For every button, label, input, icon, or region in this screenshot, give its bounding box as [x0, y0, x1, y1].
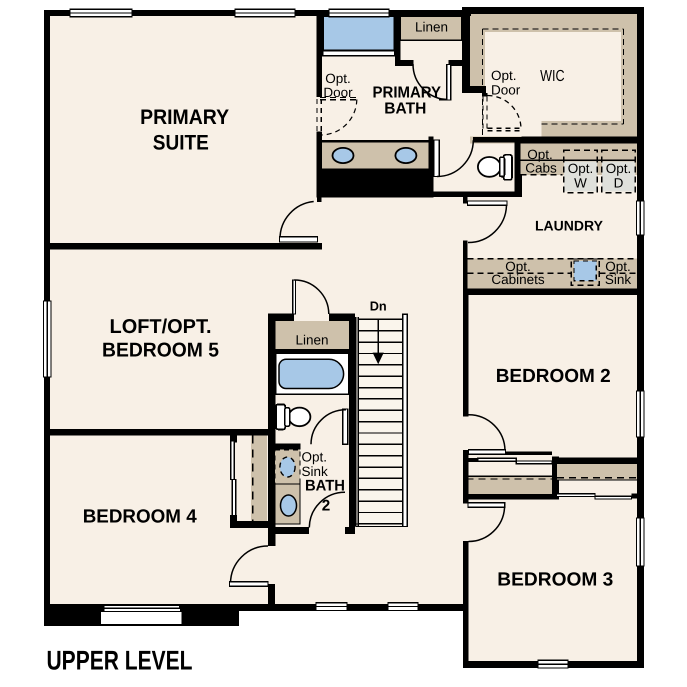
svg-text:Opt.: Opt. [302, 450, 328, 465]
svg-text:Opt.: Opt. [568, 161, 594, 176]
svg-text:W: W [574, 176, 587, 191]
svg-text:PRIMARY: PRIMARY [140, 106, 229, 129]
svg-text:WIC: WIC [540, 68, 565, 85]
svg-text:LOFT/OPT.: LOFT/OPT. [110, 316, 212, 338]
svg-text:Opt.: Opt. [491, 68, 517, 83]
svg-text:Linen: Linen [295, 333, 328, 348]
svg-text:BEDROOM 5: BEDROOM 5 [102, 340, 219, 362]
svg-text:Door: Door [323, 85, 353, 100]
svg-text:PRIMARY: PRIMARY [373, 85, 442, 102]
svg-text:BEDROOM 3: BEDROOM 3 [497, 570, 613, 591]
svg-text:UPPER LEVEL: UPPER LEVEL [47, 646, 193, 676]
svg-text:SUITE: SUITE [153, 132, 209, 155]
svg-text:Dn: Dn [370, 299, 387, 314]
svg-text:D: D [614, 176, 624, 191]
svg-text:Linen: Linen [415, 20, 448, 35]
svg-text:Cabs: Cabs [525, 160, 557, 175]
svg-text:LAUNDRY: LAUNDRY [535, 218, 604, 234]
svg-text:BATH: BATH [384, 101, 426, 118]
svg-text:Door: Door [491, 83, 521, 98]
svg-text:BATH: BATH [305, 478, 345, 495]
svg-text:BEDROOM 4: BEDROOM 4 [83, 507, 197, 528]
svg-text:Opt.: Opt. [325, 71, 351, 86]
svg-text:BEDROOM 2: BEDROOM 2 [496, 366, 611, 387]
svg-text:Cabinets: Cabinets [491, 272, 545, 287]
svg-text:Sink: Sink [605, 272, 632, 287]
svg-text:Opt.: Opt. [606, 161, 632, 176]
